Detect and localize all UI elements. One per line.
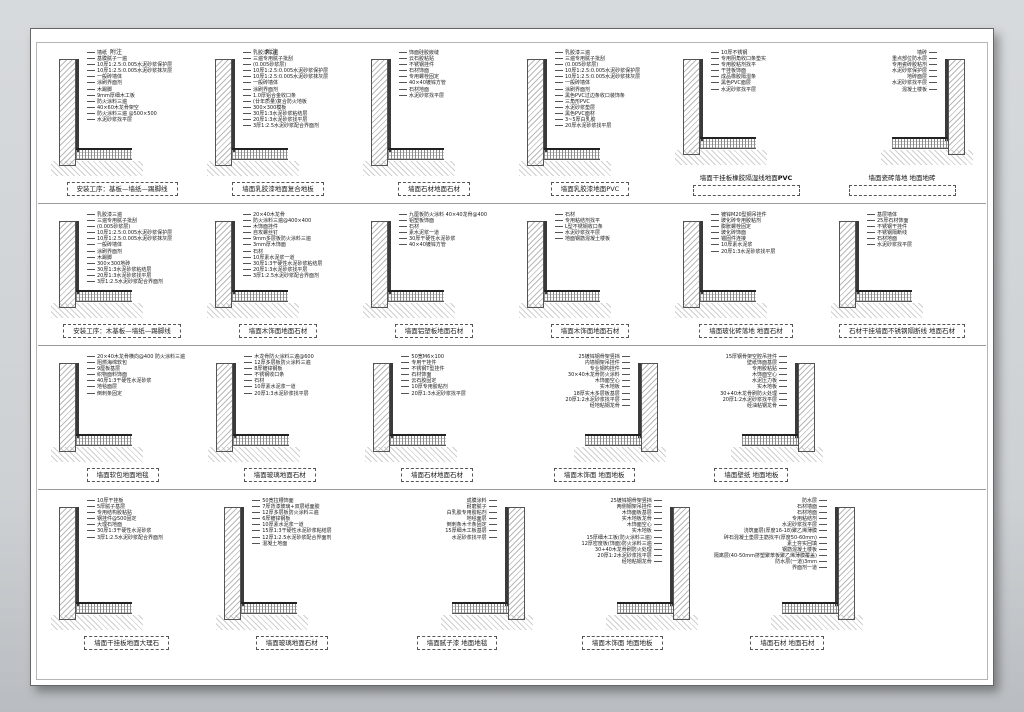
detail-title-text: 墙面玻璃地面石材 [266, 639, 318, 647]
detail-drawing: 10厚干挂板5厚腻子基层专用结构胶粘贴钢挂件@500固定大理石地面30厚1:3干… [47, 495, 206, 653]
floor-layers [700, 290, 756, 302]
detail-title-text: 墙面木饰面 地面地板 [564, 471, 625, 479]
detail-drawing: 乳胶漆三遍三遍专用腻子批刮(0.005砂浆层)10厚1:2.5:0.005水泥砂… [515, 47, 665, 199]
wall-hatch [59, 221, 76, 308]
annotation-note: 20厚1:3水泥砂浆找平层 [401, 391, 465, 397]
detail-title-text: 墙面玻璃地面石材 [254, 471, 306, 479]
wall-hatch [798, 363, 815, 452]
wall-hatch [839, 221, 856, 308]
detail-title-text: 墙面木饰面地面石材 [249, 327, 308, 335]
detail-title-text: 墙面石材地面石材 [408, 185, 460, 193]
detail-title: 安装工序：基板—墙纸—踢脚线 [67, 182, 178, 197]
detail-title-text: 墙面瓷砖落地 地面地砖 [868, 174, 935, 182]
detail-figure: 乳胶漆三遍三遍专用腻子批刮(0.005砂浆层)10厚1:2.5:0.005水泥砂… [515, 47, 665, 182]
desktop-background: { "colors":{"background":"#cdd1d4","shee… [0, 0, 1024, 712]
detail-title-text: 墙面乳胶漆地面复合地板 [242, 185, 314, 193]
wall-finish-layer [76, 507, 79, 606]
floor-layers [76, 290, 132, 302]
annotation-list: 20×40木龙骨横向@400 防火涂料三遍阻燃海绵软包9厘板基层织物面料饰面40… [87, 354, 185, 397]
annotation-note: 3厚1:2.5水泥砂浆配合界面剂 [243, 273, 322, 279]
detail-row-1: 附注墙纸基膜腻子一遍10厚1:2.5:0.005水泥砂浆保护层10厚1:2.5:… [47, 47, 977, 199]
wall-hatch [215, 59, 232, 166]
row-divider-2 [38, 345, 986, 346]
detail-title: 墙面玻璃地面石材 [244, 468, 316, 483]
annotation-note: 经地粘钢龙骨 [590, 403, 630, 409]
detail-title: 墙面木饰面地面石材 [551, 324, 630, 339]
annotation-list: 10厚不锈钢专用阴角收口条垫实专用胶粘剂找平干挂板饰面成品橡胶隔湿条黑色PVC面… [711, 50, 766, 93]
detail-drawing: 25镀锌钢骨架竖挡两侧钢架吊挂件木饰面板基层实木地板龙骨木饰面空心实木地板15厚… [543, 495, 702, 653]
detail-title: 墙面石材 地面石材 [750, 636, 824, 651]
floor-layers [544, 290, 600, 302]
detail-figure: 防水层石材墙面石材地面专用粘结剂水泥砂浆找平层浇筑面层(厚度16-18)聚乙烯薄… [708, 495, 867, 636]
detail-figure: 25镀锌钢骨架竖挡内墙钢架吊挂件专业钢构挂件30×40木龙骨防火涂料木饰面空心实… [519, 351, 670, 468]
wall-finish-layer [76, 59, 79, 152]
detail-title: 墙面干挂板地面大理石 [84, 636, 169, 651]
wall-finish-layer [233, 363, 236, 438]
wall-finish-layer [638, 363, 641, 438]
annotation-list: 乳胶漆三遍三遍专用腻子批刮(0.005砂浆层)10厚1:2.5:0.005水泥砂… [555, 50, 640, 129]
detail-drawing: 20×40木龙骨防火涂料三遍@400×400木饰面挂件自攻螺丝钉9mm多层板防火… [203, 209, 353, 341]
detail-title-text: 墙面软包地面地毯 [97, 471, 149, 479]
detail-drawing: 附注乳胶漆三遍三遍专用腻子批刮(0.005砂浆层)10厚1:2.5:0.005水… [203, 47, 353, 199]
wall-hatch [215, 221, 232, 308]
annotation-list: 基层墙体25厚石材饰面不锈钢干挂件不锈钢隔断线石材地面水泥砂浆找平层 [867, 212, 912, 249]
annotation-list: 50宽拉槽饰面7厚背漆玻璃+双层纸面胶12厚多层板防火涂料三遍6厚镀锌钢板10厚… [252, 498, 331, 547]
detail-title: 安装工序：木基板—墙纸—踢脚线 [63, 324, 181, 339]
floor-layers [76, 434, 132, 446]
floor-layers [742, 434, 798, 446]
detail-title: 墙面玻化砖落地 地面石材 [699, 324, 793, 339]
detail-figure: 15厚钢骨架空腔吊挂件壁纸饰面基层专用胶粘贴木饰面空心水泥压力板实木地板30+4… [676, 351, 827, 468]
detail-figure: 木龙骨防火涂料三遍@60012厚多层板防火涂料三遍8厚镀锌钢板不锈钢收口条石材1… [204, 351, 355, 468]
annotation-list: 镀锌M20型钢吊挂件玻化砖专用胶粘剂膨胀螺栓固定玻化砖饰面锚固件连接10厚素水泥… [711, 212, 775, 255]
annotation-note: 20厚1:3水泥砂浆找平层 [711, 249, 775, 255]
annotation-note: 水泥砂浆找平层 [87, 117, 172, 123]
floor-layers [388, 148, 444, 160]
annotation-note: 3厚1:2.5水泥砂浆配合界面剂 [243, 123, 328, 129]
annotation-note: 20厚水泥砂浆找平层 [555, 123, 640, 129]
detail-row-3: 20×40木龙骨横向@400 防火涂料三遍阻燃海绵软包9厘板基层织物面料饰面40… [47, 351, 977, 485]
annotation-note: 界面剂一道 [792, 565, 827, 571]
wall-hatch [59, 363, 76, 452]
detail-title-text: 墙面石材地面石材 [411, 471, 463, 479]
detail-title-bold: PVC [778, 174, 793, 182]
annotation-list: 九厘板防火涂料 40×40龙骨@400铝塑板饰面石材素水泥浆一道30厚干硬性水泥… [399, 212, 487, 249]
annotation-list: 石材专用粘结剂找平L型不锈钢收口条水泥砂浆找平层地面钢筋混凝土楼板 [555, 212, 610, 242]
detail-title: 墙面乳胶漆地面PVC [551, 182, 629, 197]
detail-title-text: 墙面壁纸 地面地板 [724, 471, 778, 479]
wall-finish-layer [670, 507, 673, 606]
floor-layers [390, 434, 446, 446]
detail-figure: 20×40木龙骨防火涂料三遍@400×400木饰面挂件自攻螺丝钉9mm多层板防火… [203, 209, 353, 324]
floor-layers [388, 290, 444, 302]
detail-drawing: 墙砖重点部位防水层专用瓷砖胶粘剂水泥砂浆保护层地砖面层水泥砂浆找平层混凝土楼板墙… [827, 47, 977, 199]
annotation-list: 50宽M6×100专用干挂件不锈钢T型挂件石材饰面云石胶固定10厚专用胶粘剂20… [401, 354, 465, 397]
detail-title: 墙面铝塑板地面石材 [395, 324, 474, 339]
detail-title-text: 墙面铝塑板地面石材 [405, 327, 464, 335]
annotation-list: 成膜涂料耐磨腻子白乳胶专用胶粘剂地毯面层倒刺条木卡条固定15厚细木工板基层水泥砂… [445, 498, 496, 541]
annotation-list: 乳胶漆三遍三遍专用腻子批刮(0.005砂浆层)10厚1:2.5:0.005水泥砂… [87, 212, 172, 285]
wall-hatch [527, 59, 544, 166]
annotation-note: 20厚1:3水泥砂浆找平层 [244, 391, 314, 397]
detail-title: 墙面腻子漆 地面地毯 [417, 636, 498, 651]
detail-drawing: 15厚钢骨架空腔吊挂件壁纸饰面基层专用胶粘贴木饰面空心水泥压力板实木地板30+4… [676, 351, 827, 485]
row-divider-1 [38, 203, 986, 204]
detail-drawing: 成膜涂料耐磨腻子白乳胶专用胶粘剂地毯面层倒刺条木卡条固定15厚细木工板基层水泥砂… [377, 495, 536, 653]
annotation-list: 15厚钢骨架空腔吊挂件壁纸饰面基层专用胶粘贴木饰面空心水泥压力板实木地板30+4… [720, 354, 787, 409]
annotation-note: 40×40镀锌方管 [399, 242, 487, 248]
floor-layers [700, 137, 756, 149]
annotation-note: 3厚1:2.5水泥砂浆配合界面剂 [87, 535, 163, 541]
floor-layers [585, 434, 641, 446]
wall-finish-layer [505, 507, 508, 606]
wall-hatch [373, 363, 390, 452]
annotation-list: 饰面硅胶嵌缝云石胶粘贴不锈钢挂件石材饰面专用螺栓固定40×40镀锌方管石材地面水… [399, 50, 446, 99]
detail-figure: 10厚干挂板5厚腻子基层专用结构胶粘贴钢挂件@500固定大理石地面30厚1:3干… [47, 495, 206, 636]
detail-figure: 附注乳胶漆三遍三遍专用腻子批刮(0.005砂浆层)10厚1:2.5:0.005水… [203, 47, 353, 182]
detail-title: 墙面玻璃地面石材 [256, 636, 328, 651]
floor-layers [232, 290, 288, 302]
detail-drawing: 50宽M6×100专用干挂件不锈钢T型挂件石材饰面云石胶固定10厚专用胶粘剂20… [361, 351, 512, 485]
detail-figure: 基层墙体25厚石材饰面不锈钢干挂件不锈钢隔断线石材地面水泥砂浆找平层 [827, 209, 977, 324]
wall-finish-layer [76, 363, 79, 438]
detail-title: 墙面石材地面石材 [398, 182, 470, 197]
annotation-note: 经地粘钢龙骨 [622, 559, 662, 565]
wall-finish-layer [232, 59, 235, 152]
annotation-list: 10厚干挂板5厚腻子基层专用结构胶粘贴钢挂件@500固定大理石地面30厚1:3干… [87, 498, 163, 541]
wall-hatch [371, 221, 388, 308]
wall-hatch [216, 363, 233, 452]
detail-drawing: 木龙骨防火涂料三遍@60012厚多层板防火涂料三遍8厚镀锌钢板不锈钢收口条石材1… [204, 351, 355, 485]
wall-hatch [527, 221, 544, 308]
annotation-list: 乳胶漆三遍三遍专用腻子批刮(0.005砂浆层)10厚1:2.5:0.005水泥砂… [243, 50, 328, 129]
detail-figure: 25镀锌钢骨架竖挡两侧钢架吊挂件木饰面板基层实木地板龙骨木饰面空心实木地板15厚… [543, 495, 702, 636]
detail-figure: 50宽拉槽饰面7厚背漆玻璃+双层纸面胶12厚多层板防火涂料三遍6厚镀锌钢板10厚… [212, 495, 371, 636]
detail-title-text: 石材干挂墙面不锈钢隔断线 地面石材 [849, 327, 955, 335]
detail-drawing: 20×40木龙骨横向@400 防火涂料三遍阻燃海绵软包9厘板基层织物面料饰面40… [47, 351, 198, 485]
detail-title: 墙面软包地面地毯 [87, 468, 159, 483]
detail-title: 墙面石材地面石材 [401, 468, 473, 483]
detail-title-text: 墙面乳胶漆地面PVC [561, 185, 619, 193]
annotation-note: 混凝土楼板 [902, 87, 937, 93]
detail-title: 石材干挂墙面不锈钢隔断线 地面石材 [839, 324, 965, 339]
annotation-list: 墙纸基膜腻子一遍10厚1:2.5:0.005水泥砂浆保护层10厚1:2.5:0.… [87, 50, 172, 123]
detail-title-text: 墙面腻子漆 地面地毯 [427, 639, 488, 647]
detail-drawing: 饰面硅胶嵌缝云石胶粘贴不锈钢挂件石材饰面专用螺栓固定40×40镀锌方管石材地面水… [359, 47, 509, 199]
detail-drawing: 防水层石材墙面石材地面专用粘结剂水泥砂浆找平层浇筑面层(厚度16-18)聚乙烯薄… [708, 495, 867, 653]
floor-layers [241, 602, 297, 614]
wall-finish-layer [390, 363, 393, 438]
detail-drawing: 石材专用粘结剂找平L型不锈钢收口条水泥砂浆找平层地面钢筋混凝土楼板墙面木饰面地面… [515, 209, 665, 341]
wall-finish-layer [232, 221, 235, 294]
floor-layers [617, 602, 673, 614]
detail-figure: 饰面硅胶嵌缝云石胶粘贴不锈钢挂件石材饰面专用螺栓固定40×40镀锌方管石材地面水… [359, 47, 509, 182]
floor-layers [892, 137, 948, 149]
row-divider-3 [38, 489, 986, 490]
detail-drawing: 附注墙纸基膜腻子一遍10厚1:2.5:0.005水泥砂浆保护层10厚1:2.5:… [47, 47, 197, 199]
detail-title: 墙面瓷砖落地 地面地砖 [868, 172, 935, 182]
wall-hatch [371, 59, 388, 166]
detail-drawing: 乳胶漆三遍三遍专用腻子批刮(0.005砂浆层)10厚1:2.5:0.005水泥砂… [47, 209, 197, 341]
detail-figure: 镀锌M20型钢吊挂件玻化砖专用胶粘剂膨胀螺栓固定玻化砖饰面锚固件连接10厚素水泥… [671, 209, 821, 324]
annotation-note: 经油粘钢龙骨 [747, 403, 787, 409]
detail-title: 墙面木饰面 地面地板 [554, 468, 635, 483]
detail-title-text: 安装工序：木基板—墙纸—踢脚线 [73, 327, 171, 335]
detail-drawing: 镀锌M20型钢吊挂件玻化砖专用胶粘剂膨胀螺栓固定玻化砖饰面锚固件连接10厚素水泥… [671, 209, 821, 341]
wall-finish-layer [856, 221, 859, 294]
annotation-list: 25镀锌钢骨架竖挡内墙钢架吊挂件专业钢构挂件30×40木龙骨防火涂料木饰面空心实… [565, 354, 629, 409]
drawing-sheet: 附注墙纸基膜腻子一遍10厚1:2.5:0.005水泥砂浆保护层10厚1:2.5:… [30, 28, 994, 686]
wall-hatch [683, 59, 700, 155]
annotation-note: 水泥砂浆找平层 [452, 535, 497, 541]
detail-title-text: 墙面干挂板橡胶隔湿线地面 [700, 174, 778, 182]
detail-title-box [693, 185, 800, 196]
floor-layers [544, 148, 600, 160]
detail-drawing: 50宽拉槽饰面7厚背漆玻璃+双层纸面胶12厚多层板防火涂料三遍6厚镀锌钢板10厚… [212, 495, 371, 653]
detail-drawing: 基层墙体25厚石材饰面不锈钢干挂件不锈钢隔断线石材地面水泥砂浆找平层石材干挂墙面… [827, 209, 977, 341]
detail-drawing: 25镀锌钢骨架竖挡内墙钢架吊挂件专业钢构挂件30×40木龙骨防火涂料木饰面空心实… [519, 351, 670, 485]
annotation-list: 防水层石材墙面石材地面专用粘结剂水泥砂浆找平层浇筑面层(厚度16-18)聚乙烯薄… [714, 498, 827, 571]
wall-finish-layer [241, 507, 244, 606]
detail-title-text: 墙面木饰面 地面地板 [592, 639, 653, 647]
wall-hatch [59, 59, 76, 166]
wall-finish-layer [76, 221, 79, 294]
wall-finish-layer [700, 221, 703, 294]
detail-title-box [849, 185, 956, 196]
detail-title-text: 墙面干挂板地面大理石 [94, 639, 159, 647]
floor-layers [782, 602, 838, 614]
detail-title: 墙面木饰面 地面地板 [582, 636, 663, 651]
detail-row-2: 乳胶漆三遍三遍专用腻子批刮(0.005砂浆层)10厚1:2.5:0.005水泥砂… [47, 209, 977, 341]
detail-figure: 成膜涂料耐磨腻子白乳胶专用胶粘剂地毯面层倒刺条木卡条固定15厚细木工板基层水泥砂… [377, 495, 536, 636]
floor-layers [233, 434, 289, 446]
detail-figure: 石材专用粘结剂找平L型不锈钢收口条水泥砂浆找平层地面钢筋混凝土楼板 [515, 209, 665, 324]
detail-title-text: 安装工序：基板—墙纸—踢脚线 [77, 185, 168, 193]
annotation-note: 倒刺条固定 [87, 391, 185, 397]
floor-layers [452, 602, 508, 614]
floor-layers [76, 602, 132, 614]
detail-title: 墙面壁纸 地面地板 [714, 468, 788, 483]
annotation-note: 混凝土地面 [252, 541, 331, 547]
wall-finish-layer [835, 507, 838, 606]
annotation-note: 水泥砂浆找平层 [399, 93, 446, 99]
annotation-note: 地面钢筋混凝土楼板 [555, 236, 610, 242]
detail-figure: 乳胶漆三遍三遍专用腻子批刮(0.005砂浆层)10厚1:2.5:0.005水泥砂… [47, 209, 197, 324]
detail-title: 墙面乳胶漆地面复合地板 [232, 182, 324, 197]
annotation-list: 25镀锌钢骨架竖挡两侧钢架吊挂件木饰面板基层实木地板龙骨木饰面空心实木地板15厚… [582, 498, 662, 565]
floor-layers [856, 290, 912, 302]
wall-hatch [838, 507, 855, 620]
wall-finish-layer [388, 59, 391, 152]
detail-figure: 10厚不锈钢专用阴角收口条垫实专用胶粘剂找平干挂板饰面成品橡胶隔湿条黑色PVC面… [671, 47, 821, 171]
detail-title: 墙面木饰面地面石材 [239, 324, 318, 339]
wall-finish-layer [700, 59, 703, 141]
wall-hatch [508, 507, 525, 620]
wall-finish-layer [388, 221, 391, 294]
detail-figure: 20×40木龙骨横向@400 防火涂料三遍阻燃海绵软包9厘板基层织物面料饰面40… [47, 351, 198, 468]
detail-drawing: 九厘板防火涂料 40×40龙骨@400铝塑板饰面石材素水泥浆一道30厚干硬性水泥… [359, 209, 509, 341]
detail-figure: 九厘板防火涂料 40×40龙骨@400铝塑板饰面石材素水泥浆一道30厚干硬性水泥… [359, 209, 509, 324]
detail-row-4: 10厚干挂板5厚腻子基层专用结构胶粘贴钢挂件@500固定大理石地面30厚1:3干… [47, 495, 977, 653]
detail-title: 墙面干挂板橡胶隔湿线地面PVC [700, 172, 793, 182]
wall-hatch [683, 221, 700, 308]
floor-layers [76, 148, 132, 160]
detail-figure: 50宽M6×100专用干挂件不锈钢T型挂件石材饰面云石胶固定10厚专用胶粘剂20… [361, 351, 512, 468]
detail-drawing: 10厚不锈钢专用阴角收口条垫实专用胶粘剂找平干挂板饰面成品橡胶隔湿条黑色PVC面… [671, 47, 821, 199]
detail-title-text: 墙面石材 地面石材 [760, 639, 814, 647]
wall-finish-layer [795, 363, 798, 438]
wall-finish-layer [544, 59, 547, 152]
detail-figure: 墙砖重点部位防水层专用瓷砖胶粘剂水泥砂浆保护层地砖面层水泥砂浆找平层混凝土楼板 [827, 47, 977, 171]
detail-title-text: 墙面玻化砖落地 地面石材 [709, 327, 783, 335]
wall-finish-layer [945, 59, 948, 141]
annotation-list: 木龙骨防火涂料三遍@60012厚多层板防火涂料三遍8厚镀锌钢板不锈钢收口条石材1… [244, 354, 314, 397]
detail-figure: 附注墙纸基膜腻子一遍10厚1:2.5:0.005水泥砂浆保护层10厚1:2.5:… [47, 47, 197, 182]
detail-title-text: 墙面木饰面地面石材 [561, 327, 620, 335]
annotation-list: 20×40木龙骨防火涂料三遍@400×400木饰面挂件自攻螺丝钉9mm多层板防火… [243, 212, 322, 279]
annotation-note: 3厚1:2.5水泥砂浆配合界面剂 [87, 279, 172, 285]
annotation-list: 墙砖重点部位防水层专用瓷砖胶粘剂水泥砂浆保护层地砖面层水泥砂浆找平层混凝土楼板 [892, 50, 937, 93]
wall-hatch [59, 507, 76, 620]
wall-hatch [948, 59, 965, 155]
floor-layers [232, 148, 288, 160]
wall-hatch [641, 363, 658, 452]
wall-finish-layer [544, 221, 547, 294]
annotation-note: 水泥砂浆找平层 [867, 242, 912, 248]
wall-hatch [224, 507, 241, 620]
annotation-note: 水泥砂浆找平层 [711, 87, 766, 93]
wall-hatch [673, 507, 690, 620]
